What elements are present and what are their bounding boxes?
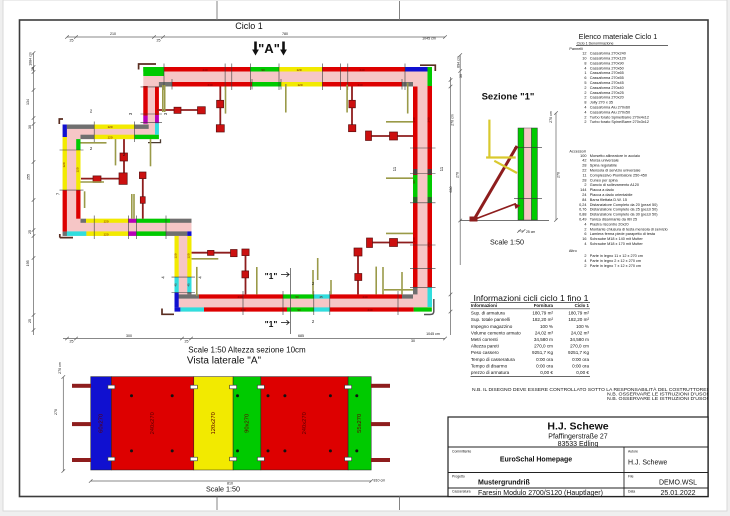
svg-text:Altezza pareti: Altezza pareti <box>471 344 499 349</box>
svg-text:25: 25 <box>70 340 74 344</box>
svg-text:Parte in legno 11 x 12 x 270 c: Parte in legno 11 x 12 x 270 cm <box>590 254 643 258</box>
svg-text:Cassaforma Alu 270x50: Cassaforma Alu 270x50 <box>590 110 630 114</box>
svg-text:270: 270 <box>456 172 460 178</box>
svg-text:Montante chiusura di testa men: Montante chiusura di testa mensola di se… <box>590 227 668 231</box>
svg-text:Cassaforma 270x90: Cassaforma 270x90 <box>590 61 624 65</box>
svg-text:Spina regolabile: Spina regolabile <box>590 164 617 168</box>
svg-text:0,24: 0,24 <box>579 203 586 207</box>
svg-text:30: 30 <box>31 67 35 71</box>
svg-text:Scale 1:50: Scale 1:50 <box>206 485 240 494</box>
svg-text:0:00 ora: 0:00 ora <box>536 357 553 362</box>
svg-text:0:00 ora: 0:00 ora <box>572 363 589 368</box>
svg-text:Vista laterale "A": Vista laterale "A" <box>187 356 262 367</box>
svg-text:0,76: 0,76 <box>579 208 586 212</box>
svg-text:Mustergrundriß: Mustergrundriß <box>478 480 530 487</box>
svg-text:182,20 m²: 182,20 m² <box>532 317 553 322</box>
svg-text:Progetto: Progetto <box>452 475 465 479</box>
svg-text:120: 120 <box>174 253 178 258</box>
svg-text:Parte in legno 7 x 12 x 270 cm: Parte in legno 7 x 12 x 270 cm <box>590 264 641 268</box>
svg-text:195: 195 <box>26 260 30 266</box>
svg-text:24,02 m³: 24,02 m³ <box>535 330 554 335</box>
svg-text:100: 100 <box>580 154 586 158</box>
svg-text:240: 240 <box>202 68 207 72</box>
svg-text:Accessori: Accessori <box>569 149 586 153</box>
svg-text:Morsa universale: Morsa universale <box>590 159 619 163</box>
svg-text:9251,7 Kg: 9251,7 Kg <box>568 350 589 355</box>
svg-text:prezzo di armatura: prezzo di armatura <box>471 370 510 375</box>
svg-text:Cuneo per spina: Cuneo per spina <box>590 178 619 182</box>
svg-text:270 cm: 270 cm <box>451 114 455 126</box>
svg-text:25 cm: 25 cm <box>526 230 535 234</box>
svg-text:45: 45 <box>319 295 323 299</box>
svg-text:300: 300 <box>126 334 132 338</box>
svg-text:Turbo forato Spine/Barre 270x3: Turbo forato Spine/Barre 270x3x12 <box>590 120 649 124</box>
svg-text:Cassaforma 270x20: Cassaforma 270x20 <box>590 96 624 100</box>
svg-text:1045 cm: 1045 cm <box>422 37 436 41</box>
svg-text:240: 240 <box>240 308 245 312</box>
svg-text:Casseratura: Casseratura <box>452 490 471 494</box>
svg-text:2: 2 <box>584 120 586 124</box>
svg-text:30: 30 <box>459 74 463 78</box>
svg-text:240: 240 <box>207 83 212 87</box>
svg-text:28: 28 <box>582 178 586 182</box>
svg-text:Cassaforma 270x65: Cassaforma 270x65 <box>590 71 624 75</box>
svg-text:10: 10 <box>582 57 586 61</box>
svg-text:120: 120 <box>103 232 108 236</box>
svg-text:182,20 m²: 182,20 m² <box>568 317 589 322</box>
svg-text:Placca a dado: Placca a dado <box>590 188 614 192</box>
svg-text:Gancio di sollevamento A120: Gancio di sollevamento A120 <box>590 183 639 187</box>
svg-text:H.J. Schewe: H.J. Schewe <box>628 460 667 467</box>
svg-text:Sup. di armatura: Sup. di armatura <box>471 311 505 316</box>
svg-text:11: 11 <box>583 173 587 177</box>
svg-text:Scale 1:50: Scale 1:50 <box>490 238 524 247</box>
svg-text:120: 120 <box>103 219 108 223</box>
svg-text:270,0 cm: 270,0 cm <box>570 344 589 349</box>
svg-text:810 cm: 810 cm <box>374 479 386 483</box>
svg-text:8: 8 <box>584 61 586 65</box>
svg-text:5: 5 <box>584 81 586 85</box>
svg-text:Ciclo 1 Denominazione: Ciclo 1 Denominazione <box>577 41 614 45</box>
svg-text:Complessivo Piombatore 250-450: Complessivo Piombatore 250-450 <box>590 173 647 177</box>
svg-text:Peso cassero: Peso cassero <box>471 350 499 355</box>
svg-text:90x270: 90x270 <box>245 414 251 433</box>
svg-text:"1": "1" <box>265 271 278 281</box>
svg-text:12: 12 <box>582 52 586 56</box>
svg-text:4: 4 <box>584 106 586 110</box>
svg-text:144: 144 <box>580 188 586 192</box>
svg-text:Sup. totale pannelli: Sup. totale pannelli <box>471 317 510 322</box>
svg-text:Altro: Altro <box>569 249 577 253</box>
svg-text:Cassaforma 270x240: Cassaforma 270x240 <box>590 52 626 56</box>
svg-text:Pfaffingerstraße 27: Pfaffingerstraße 27 <box>548 434 608 441</box>
svg-text:45: 45 <box>186 283 190 287</box>
svg-text:Lamiera ferma piede parapetto: Lamiera ferma piede parapetto di testa <box>590 232 656 236</box>
svg-text:42: 42 <box>582 159 586 163</box>
svg-text:25.01.2022: 25.01.2022 <box>660 490 695 497</box>
svg-text:6: 6 <box>584 76 586 80</box>
svg-text:100 %: 100 % <box>576 324 589 329</box>
svg-text:2: 2 <box>584 115 586 119</box>
svg-text:"1": "1" <box>265 319 278 329</box>
svg-text:2: 2 <box>584 91 586 95</box>
svg-text:2: 2 <box>584 86 586 90</box>
svg-text:83533 Edling: 83533 Edling <box>558 441 599 448</box>
svg-text:30: 30 <box>28 125 32 129</box>
svg-text:240: 240 <box>427 242 431 247</box>
svg-text:630: 630 <box>449 187 453 193</box>
svg-text:Autore: Autore <box>628 450 638 454</box>
svg-text:Cassaforma 270x60: Cassaforma 270x60 <box>590 66 624 70</box>
svg-text:9251,7 Kg: 9251,7 Kg <box>532 350 553 355</box>
svg-text:0:00 ora: 0:00 ora <box>536 363 553 368</box>
svg-text:Pannelli: Pannelli <box>569 47 583 51</box>
svg-text:0,88: 0,88 <box>579 213 586 217</box>
svg-text:4: 4 <box>584 242 586 246</box>
svg-text:22: 22 <box>582 169 586 173</box>
svg-text:0,00 €: 0,00 € <box>576 370 589 375</box>
svg-text:1045 cm: 1045 cm <box>426 332 440 336</box>
svg-text:Piastra riscontro 20x20: Piastra riscontro 20x20 <box>590 222 629 226</box>
svg-text:120x270: 120x270 <box>211 412 217 434</box>
svg-text:Faresin Modulo 2700/S120 (Haup: Faresin Modulo 2700/S120 (Hauptlager) <box>478 490 603 497</box>
svg-text:Placca a dado orientabile: Placca a dado orientabile <box>590 193 633 197</box>
svg-text:4: 4 <box>584 66 586 70</box>
svg-text:4: 4 <box>584 222 586 226</box>
svg-text:45: 45 <box>174 283 178 287</box>
svg-text:55x270: 55x270 <box>357 414 363 433</box>
svg-text:270 cm: 270 cm <box>549 111 553 123</box>
svg-text:120: 120 <box>296 68 301 72</box>
svg-text:N.B. OSSERVARE LE ISTRUZIONI D: N.B. OSSERVARE LE ISTRUZIONI D'USO! <box>607 396 708 401</box>
svg-text:DEMO.WSL: DEMO.WSL <box>659 480 697 487</box>
svg-text:34,580 m: 34,580 m <box>570 337 589 342</box>
svg-text:Committente: Committente <box>452 450 471 454</box>
svg-text:Distanziatore Completo da 30 (: Distanziatore Completo da 30 (pezzi 50) <box>590 213 658 217</box>
svg-text:8: 8 <box>584 101 586 105</box>
svg-text:685: 685 <box>298 334 304 338</box>
svg-text:120: 120 <box>107 135 112 139</box>
svg-text:11: 11 <box>439 166 444 171</box>
svg-text:270 cm: 270 cm <box>58 362 62 374</box>
svg-text:Data: Data <box>628 490 635 494</box>
svg-text:30: 30 <box>411 339 415 343</box>
svg-text:Ciclo 1: Ciclo 1 <box>235 21 263 31</box>
svg-text:Cassaforma 270x120: Cassaforma 270x120 <box>590 57 626 61</box>
svg-text:90: 90 <box>412 180 416 184</box>
svg-text:16: 16 <box>582 237 586 241</box>
svg-text:24,02 m³: 24,02 m³ <box>571 330 590 335</box>
svg-text:Distanziatore Completo da 20 (: Distanziatore Completo da 20 (pezzi 50) <box>590 203 658 207</box>
svg-text:Jolly 270 x 35: Jolly 270 x 35 <box>590 101 613 105</box>
svg-text:2: 2 <box>584 254 586 258</box>
svg-text:694 cm: 694 cm <box>457 56 461 68</box>
svg-text:270: 270 <box>54 409 58 415</box>
svg-text:134: 134 <box>26 99 30 105</box>
svg-text:90: 90 <box>261 68 265 72</box>
svg-text:270: 270 <box>557 172 561 178</box>
svg-text:Cassaforma Alu 270x60: Cassaforma Alu 270x60 <box>590 106 630 110</box>
svg-text:120: 120 <box>297 83 302 87</box>
svg-text:11: 11 <box>392 166 397 171</box>
svg-text:Morsetto allineatore in acciai: Morsetto allineatore in acciaio <box>590 154 640 158</box>
svg-text:25: 25 <box>28 230 32 234</box>
svg-text:100 %: 100 % <box>540 324 553 329</box>
svg-text:25: 25 <box>70 39 74 43</box>
svg-text:780: 780 <box>282 32 288 36</box>
svg-text:60x270: 60x270 <box>99 414 105 433</box>
svg-text:Informazioni: Informazioni <box>471 303 497 308</box>
svg-text:Mensola di servizio universale: Mensola di servizio universale <box>590 169 641 173</box>
svg-text:25: 25 <box>28 319 32 323</box>
svg-text:1: 1 <box>584 71 586 75</box>
svg-text:210: 210 <box>110 32 116 36</box>
svg-text:Informazioni cicli ciclo 1 fi: Informazioni cicli ciclo 1 fino 1 <box>474 293 589 303</box>
svg-text:"A": "A" <box>258 41 280 56</box>
svg-text:0,49: 0,49 <box>579 218 586 222</box>
svg-text:240: 240 <box>362 295 367 299</box>
svg-text:270,0 cm: 270,0 cm <box>534 344 553 349</box>
svg-text:Cassaforma 270x45: Cassaforma 270x45 <box>590 81 624 85</box>
svg-text:25: 25 <box>185 340 189 344</box>
svg-text:Cassaforma 270x40: Cassaforma 270x40 <box>590 86 624 90</box>
svg-text:180,79 m²: 180,79 m² <box>532 311 553 316</box>
svg-text:2: 2 <box>584 264 586 268</box>
svg-text:2: 2 <box>584 227 586 231</box>
svg-text:Scale 1:50 Altezza sezione 1: Scale 1:50 Altezza sezione 10cm <box>188 346 306 355</box>
svg-text:84: 84 <box>582 198 586 202</box>
svg-text:1084 cm: 1084 cm <box>29 52 33 66</box>
svg-text:H.J. Schewe: H.J. Schewe <box>547 421 608 433</box>
svg-text:6: 6 <box>584 232 586 236</box>
svg-text:Tempo di casseratura: Tempo di casseratura <box>471 357 515 362</box>
svg-text:Impegno magazzino: Impegno magazzino <box>471 324 513 329</box>
svg-text:Sezione "1": Sezione "1" <box>482 92 535 103</box>
svg-text:240x270: 240x270 <box>150 412 156 434</box>
svg-text:Distanziatore Completo da 25 (: Distanziatore Completo da 25 (pezzi 50) <box>590 208 658 212</box>
svg-text:Cassaforma 270x25: Cassaforma 270x25 <box>590 91 624 95</box>
svg-text:2: 2 <box>584 183 586 187</box>
svg-text:240: 240 <box>359 68 364 72</box>
svg-text:240: 240 <box>367 308 372 312</box>
svg-text:240: 240 <box>412 117 416 122</box>
svg-text:120: 120 <box>62 162 66 167</box>
svg-text:28: 28 <box>582 164 586 168</box>
svg-text:240: 240 <box>237 295 242 299</box>
svg-text:Tempo di disarmo: Tempo di disarmo <box>471 363 508 368</box>
svg-text:240: 240 <box>427 117 431 122</box>
svg-text:4: 4 <box>584 110 586 114</box>
svg-text:Fornitura: Fornitura <box>534 303 554 308</box>
svg-text:Metri correnti: Metri correnti <box>471 337 498 342</box>
svg-text:EuroSchal Homepage: EuroSchal Homepage <box>500 457 572 464</box>
svg-text:4: 4 <box>584 259 586 263</box>
svg-text:120: 120 <box>107 125 112 129</box>
svg-text:240: 240 <box>412 237 416 242</box>
svg-text:0,00 €: 0,00 € <box>540 370 553 375</box>
svg-text:34,580 m: 34,580 m <box>534 337 553 342</box>
svg-text:Cassaforma 270x55: Cassaforma 270x55 <box>590 76 624 80</box>
svg-text:90: 90 <box>297 308 301 312</box>
svg-text:Tanica disarmante da litri 25: Tanica disarmante da litri 25 <box>590 218 637 222</box>
svg-text:Turbo forato Spine/Barre 270x4: Turbo forato Spine/Barre 270x4x12 <box>590 115 649 119</box>
svg-text:255: 255 <box>27 174 31 180</box>
svg-text:Schraube M18 x 170 mit Mutter: Schraube M18 x 170 mit Mutter <box>590 242 644 246</box>
svg-text:Ciclo 1: Ciclo 1 <box>575 303 590 308</box>
svg-text:2: 2 <box>584 96 586 100</box>
svg-text:Volume cemento armato: Volume cemento armato <box>471 330 521 335</box>
svg-text:120: 120 <box>75 167 79 172</box>
svg-text:Parte in legno 2 x 12 x 270 cm: Parte in legno 2 x 12 x 270 cm <box>590 259 641 263</box>
svg-text:240: 240 <box>357 83 362 87</box>
svg-text:25: 25 <box>157 39 161 43</box>
svg-text:120: 120 <box>186 253 190 258</box>
svg-text:0:00 ora: 0:00 ora <box>572 357 589 362</box>
svg-text:Schraube M18 x 140 mit Mutter: Schraube M18 x 140 mit Mutter <box>590 237 644 241</box>
svg-text:90: 90 <box>295 295 299 299</box>
svg-text:24: 24 <box>582 193 586 197</box>
svg-text:Elenco materiale Ciclo 1: Elenco materiale Ciclo 1 <box>579 32 658 41</box>
svg-text:240x270: 240x270 <box>302 412 308 434</box>
svg-text:Barra filettata D.W. 15: Barra filettata D.W. 15 <box>590 198 627 202</box>
svg-text:180,79 m²: 180,79 m² <box>568 311 589 316</box>
svg-text:File: File <box>628 475 634 479</box>
